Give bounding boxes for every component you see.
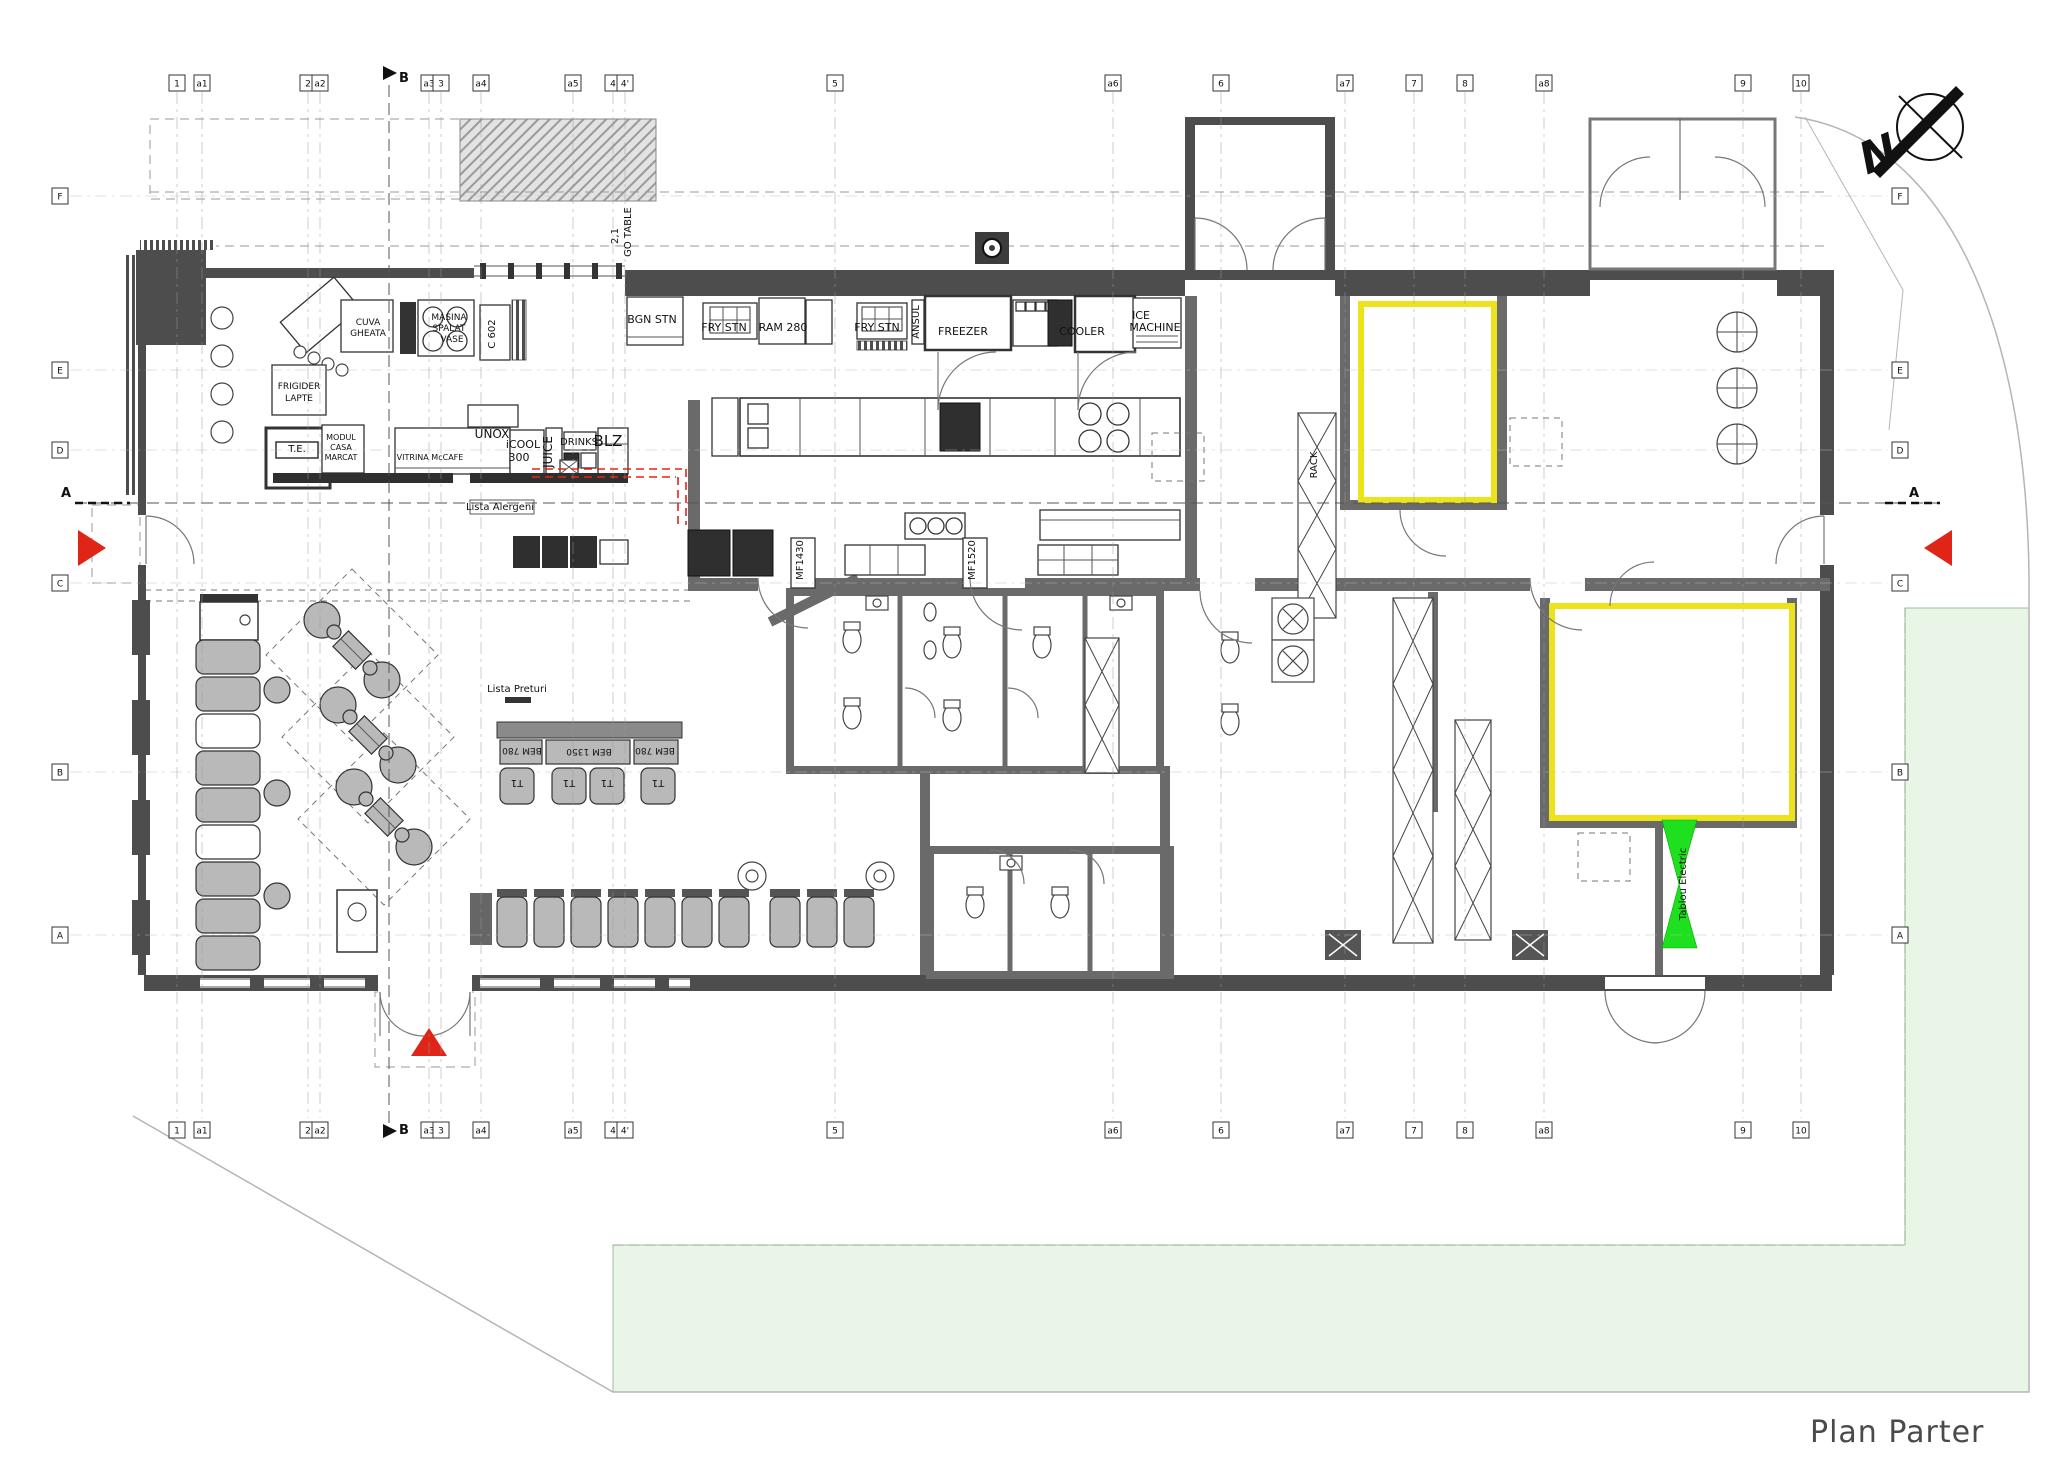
entry-arrow-right (1924, 530, 1952, 566)
diagonal-seating (266, 569, 470, 905)
plan-label: MF1430 (795, 540, 806, 580)
grid-bubble-label: 5 (832, 1127, 838, 1137)
grid-bubble-label: 7 (1411, 80, 1417, 90)
bench-row (337, 862, 894, 952)
grid-bubble-label: a2 (314, 80, 325, 90)
plan-label: MASINA (431, 313, 467, 323)
grid-bubble-label: a6 (1107, 1127, 1119, 1137)
plan-label: BEM 780 (635, 745, 675, 755)
grid-bubble-label: a4 (475, 1127, 487, 1137)
grid-bubble-label: F (1897, 193, 1902, 203)
plan-label: ANSUL (911, 305, 922, 339)
grid-bubble-label: A (1897, 932, 1904, 942)
plan-label: RACK (1309, 451, 1320, 478)
plan-label: BLZ (594, 432, 623, 450)
plan-label: Lista Preturi (487, 684, 547, 695)
grid-bubble-label: 4' (621, 80, 629, 90)
grid-bubble-label: 6 (1218, 80, 1224, 90)
plan-label: 2,1 (610, 228, 621, 244)
grid-bubble-label: a7 (1339, 1127, 1350, 1137)
plan-label: T.E. (287, 444, 306, 455)
plan-label: LAPTE (285, 394, 313, 404)
floor-plan-canvas: 11a1a122a2a2a3a333a4a4a5a5444'4'55a6a666… (0, 0, 2059, 1459)
plan-label: MACHINE (1129, 321, 1180, 334)
grid-bubble-label: a7 (1339, 80, 1350, 90)
grid-bubble-label: B (1897, 769, 1903, 779)
plan-label: MODUL (326, 433, 356, 442)
mccafe-counters (211, 277, 628, 703)
grid-bubble-label: 3 (438, 1127, 444, 1137)
grid-bubble-label: C (1897, 580, 1903, 590)
grid-bubble-label: a1 (196, 1127, 207, 1137)
grid-bubble-label: a1 (196, 80, 207, 90)
plan-label: CASA (330, 443, 352, 452)
plan-label: RAM 280 (759, 321, 808, 334)
section-marker-label: A (61, 486, 71, 501)
grid-bubble-label: 8 (1462, 1127, 1468, 1137)
plan-label: FRY STN (701, 321, 746, 334)
plan-label: T1 (511, 777, 524, 788)
grid-bubble-label: D (57, 447, 64, 457)
plan-label: CUVA (356, 318, 381, 328)
grid-bubble-label: 1 (174, 1127, 180, 1137)
grid-bubble-label: a6 (1107, 80, 1119, 90)
plan-label: C 602 (487, 319, 498, 348)
site-lawn (613, 608, 2029, 1392)
plan-label: VITRINA McCAFE (397, 453, 464, 462)
section-marker-label: B (399, 1123, 409, 1138)
kitchen-equipment (627, 296, 1181, 588)
grid-bubble-label: a2 (314, 1127, 325, 1137)
plan-label: FRY STN (854, 321, 899, 334)
grid-bubble-label: 1 (174, 80, 180, 90)
plan-label: SPALAT (433, 324, 466, 334)
grid-bubble-label: B (57, 769, 63, 779)
grid-bubble-label: 4' (621, 1127, 629, 1137)
plan-label: iCOOL (506, 438, 541, 451)
grid-bubble-label: 3 (438, 80, 444, 90)
sanitary-fixtures (843, 596, 1548, 960)
plan-label: T1 (652, 777, 665, 788)
section-marker-label: A (1909, 486, 1919, 501)
grid-bubble-label: 6 (1218, 1127, 1224, 1137)
grid-bubble-label: E (57, 367, 63, 377)
grid-bubble-label: 5 (832, 80, 838, 90)
plan-label: T1 (601, 777, 614, 788)
grid-bubble-label: 4 (610, 1127, 616, 1137)
plan-label: BEM 780 (502, 745, 542, 755)
grid-bubble-label: D (1897, 447, 1904, 457)
grid-bubble-label: 7 (1411, 1127, 1417, 1137)
section-marker-label: B (399, 71, 409, 86)
plan-label: GHEATA (350, 329, 387, 339)
grid-bubble-label: a8 (1538, 1127, 1550, 1137)
grid-bubble-label: C (57, 580, 63, 590)
grid-bubble-label: 10 (1795, 80, 1807, 90)
grid-bubble-label: 9 (1740, 1127, 1746, 1137)
plan-label: UNOX (475, 427, 510, 441)
plan-label: MF1520 (967, 540, 978, 580)
plan-label: DRINKS (560, 437, 598, 448)
grid-bubble-label: a5 (567, 1127, 578, 1137)
plan-label: VASE (440, 335, 463, 345)
grid-bubble-label: 8 (1462, 80, 1468, 90)
grid-bubble-label: A (57, 932, 64, 942)
grid-bubble-label: F (57, 193, 62, 203)
grid-bubble-label: 9 (1740, 80, 1746, 90)
plan-label: BEM 1350 (566, 746, 612, 756)
plan-label: T1 (563, 777, 576, 788)
plan-label: 300 (509, 451, 530, 464)
grid-bubble-label: 10 (1795, 1127, 1807, 1137)
plan-label: GO TABLE (623, 207, 634, 257)
plan-title: Plan Parter (1810, 1415, 1984, 1450)
plan-label: BGN STN (627, 313, 677, 326)
plan-label: Tablou Electric (1678, 848, 1689, 921)
floor-plan-svg: 11a1a122a2a2a3a333a4a4a5a5444'4'55a6a666… (0, 0, 2059, 1459)
plan-label: FREEZER (938, 325, 988, 338)
grid-bubble-label: 2 (305, 1127, 311, 1137)
grid-bubble-label: a8 (1538, 80, 1550, 90)
grid-bubble-label: 4 (610, 80, 616, 90)
plan-label: Lista Alergeni (466, 502, 534, 513)
plan-label: MARCAT (325, 453, 358, 462)
grid-bubble-label: 2 (305, 80, 311, 90)
grid-bubble-label: E (1897, 367, 1903, 377)
plan-label: COOLER (1059, 325, 1105, 338)
grid-bubble-label: a5 (567, 80, 578, 90)
plan-label: JUICE (541, 436, 555, 469)
plan-label: FRIGIDER (278, 382, 321, 392)
grid-bubble-label: a4 (475, 80, 487, 90)
